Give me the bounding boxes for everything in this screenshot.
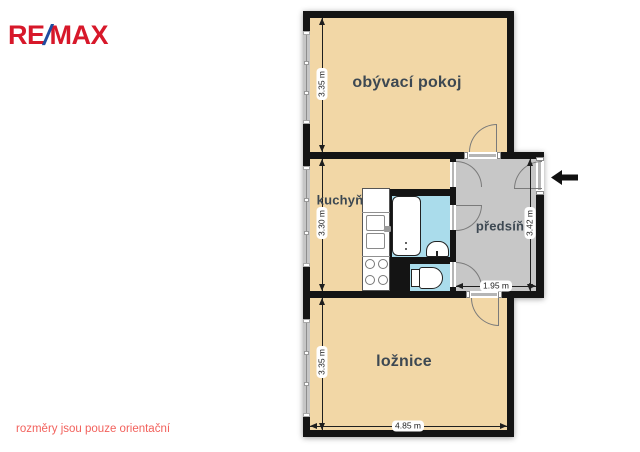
floor-plan: 3.35 m 3.30 m 3.35 m 3.42 m 1.95 m 4.85 … bbox=[0, 0, 640, 452]
window-mullion bbox=[304, 231, 309, 235]
entrance-arrow-icon bbox=[551, 170, 578, 185]
window-mullion bbox=[304, 198, 309, 202]
kitchen-sink-icon bbox=[366, 215, 385, 231]
bathtub-drain-icon bbox=[405, 248, 407, 250]
dim-arrow bbox=[527, 159, 533, 166]
window-frame bbox=[303, 166, 310, 170]
dim-label-bedroom-width: 4.85 m bbox=[392, 421, 424, 432]
dim-arrow bbox=[310, 423, 317, 429]
door-slab-kitchen bbox=[452, 162, 454, 187]
dim-arrow bbox=[319, 298, 325, 305]
dim-label-hall-width: 1.95 m bbox=[480, 281, 512, 292]
dim-label-kitchen-height: 3.30 m bbox=[317, 207, 328, 239]
bathtub-drain-icon bbox=[405, 242, 407, 244]
dim-arrow bbox=[319, 284, 325, 291]
dim-arrow bbox=[319, 159, 325, 166]
dim-arrow bbox=[529, 283, 536, 289]
sink-tap-icon bbox=[384, 226, 391, 232]
room-label-living: obývací pokoj bbox=[352, 74, 461, 92]
dim-label-bedroom-height: 3.35 m bbox=[317, 346, 328, 378]
door-jamb bbox=[464, 152, 468, 159]
window bbox=[303, 166, 310, 267]
page: RE/MAX bbox=[0, 0, 640, 452]
stove-burner-icon bbox=[378, 259, 388, 269]
window bbox=[303, 319, 310, 417]
door-jamb bbox=[498, 291, 502, 298]
door-slab-bathroom bbox=[452, 205, 454, 230]
door-jamb bbox=[536, 191, 544, 195]
room-label-bedroom: ložnice bbox=[376, 353, 432, 371]
disclaimer-text: rozměry jsou pouze orientační bbox=[16, 423, 170, 435]
counter-divider bbox=[362, 256, 390, 257]
toilet-icon bbox=[419, 267, 443, 289]
window-frame bbox=[303, 31, 310, 35]
window-mullion bbox=[304, 91, 309, 95]
bathtub-icon bbox=[392, 196, 421, 256]
dim-label-hall-height: 3.42 m bbox=[525, 207, 536, 239]
dim-arrow bbox=[319, 145, 325, 152]
dim-arrow bbox=[500, 423, 507, 429]
window-glass bbox=[306, 166, 307, 267]
room-label-kitchen: kuchyň bbox=[317, 193, 364, 208]
door-slab-living bbox=[469, 154, 496, 157]
window-frame bbox=[303, 263, 310, 267]
window-frame bbox=[303, 319, 310, 323]
window-mullion bbox=[304, 61, 309, 65]
window-frame bbox=[303, 120, 310, 124]
stove-burner-icon bbox=[365, 275, 375, 285]
dim-arrow bbox=[456, 283, 463, 289]
door-slab-wc bbox=[452, 262, 454, 287]
door-jamb bbox=[466, 291, 470, 298]
window bbox=[303, 31, 310, 124]
window-mullion bbox=[304, 351, 309, 355]
window-glass bbox=[306, 319, 307, 417]
window-mullion bbox=[304, 382, 309, 386]
stove-burner-icon bbox=[365, 259, 375, 269]
dim-label-living-height: 3.35 m bbox=[317, 68, 328, 100]
dim-arrow bbox=[319, 18, 325, 25]
door-slab-bedroom bbox=[471, 293, 497, 296]
door-jamb bbox=[497, 152, 501, 159]
stove-burner-icon bbox=[378, 275, 388, 285]
window-glass bbox=[306, 31, 307, 124]
washbasin-tap-icon bbox=[436, 251, 438, 256]
room-label-hall: předsíň bbox=[476, 219, 524, 234]
window-frame bbox=[303, 413, 310, 417]
counter-divider bbox=[362, 212, 390, 213]
kitchen-sink-icon bbox=[366, 233, 385, 249]
